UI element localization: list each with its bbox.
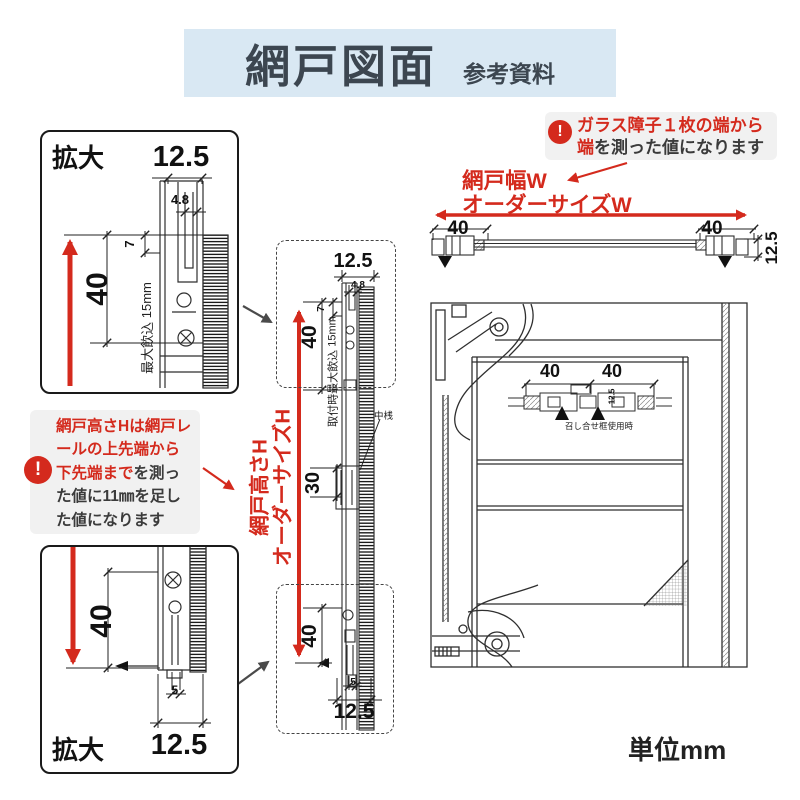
horizontal-section bbox=[432, 236, 748, 268]
meeting-stile-label: 召し合せ框使用時 bbox=[549, 420, 649, 431]
dim-12-5-hsec: 12.5 bbox=[763, 222, 781, 274]
note-height-line5: た値になります bbox=[56, 509, 200, 532]
note-height-line4: た値に11㎜を足し bbox=[56, 485, 200, 508]
callout-arrow-top bbox=[243, 306, 271, 322]
page-title: 網戸図面 bbox=[245, 44, 437, 89]
warning-icon: ! bbox=[548, 120, 572, 144]
window-elevation bbox=[431, 303, 747, 667]
order-size-width-label: オーダーサイズW bbox=[462, 188, 632, 219]
page-subtitle: 参考資料 bbox=[463, 63, 555, 86]
note-height-line3: 下先端までを測っ bbox=[56, 462, 200, 485]
dim-12-5-mid-top: 12.5 bbox=[330, 250, 376, 272]
screen-height-label-line1: 網戸高さH bbox=[248, 409, 271, 566]
dim-5-mid: 5 bbox=[346, 676, 360, 688]
header-band: 網戸図面 参考資料 bbox=[184, 29, 616, 97]
max-swallow-label-top-box: 最大飲込 15mm bbox=[138, 263, 154, 393]
note-height-line1: 網戸高さHは網戸レ bbox=[56, 415, 200, 438]
note-glass-panel: ガラス障子１枚の端から 端を測った値になります bbox=[545, 112, 777, 160]
enlarge-label-bottom: 拡大 bbox=[52, 730, 104, 767]
mid-rail-label: 中桟 bbox=[374, 408, 393, 422]
dim-12-5-bottom-box: 12.5 bbox=[143, 730, 215, 760]
dim-7-top-box: 7 bbox=[121, 235, 137, 253]
dim-40-top-box: 40 bbox=[83, 259, 113, 319]
dim-40-stile-right: 40 bbox=[596, 363, 628, 380]
dim-40-mid-bottom: 40 bbox=[299, 614, 321, 658]
note-glass-line2: 端を測った値になります bbox=[577, 137, 777, 159]
dim-12-5-stile: 12.5 bbox=[608, 384, 617, 410]
dim-12-5-mid-bottom: 12.5 bbox=[330, 701, 378, 723]
note-glass-line1: ガラス障子１枚の端から bbox=[577, 115, 777, 137]
callout-arrow-bottom bbox=[238, 662, 268, 684]
dim-4-8-mid: 4.8 bbox=[344, 279, 372, 291]
dim-30-mid: 30 bbox=[303, 468, 323, 498]
warning-icon: ! bbox=[24, 456, 52, 484]
meeting-stile-detail bbox=[508, 380, 672, 420]
dim-40-bottom-box: 40 bbox=[87, 591, 117, 651]
dim-40-hsec-right: 40 bbox=[694, 220, 730, 238]
dim-12-5-top-box: 12.5 bbox=[146, 142, 216, 172]
screen-door-spec-sheet: 網戸図面 参考資料 ガラス障子１枚の端から 端を測った値になります ! 網戸高さ… bbox=[0, 0, 800, 800]
enlarge-label-top: 拡大 bbox=[52, 138, 104, 175]
max-swallow-label-mid: 取付時最大飲込 15mm bbox=[325, 317, 340, 427]
dim-4-8-top-box: 4.8 bbox=[160, 192, 200, 206]
screen-height-label: 網戸高さH オーダーサイズH bbox=[248, 388, 295, 588]
unit-label: 単位mm bbox=[628, 730, 726, 767]
height-note-arrow bbox=[203, 468, 233, 489]
note-height-line2: ールの上先端から bbox=[56, 438, 200, 461]
dim-40-mid-top: 40 bbox=[299, 315, 321, 359]
dim-40-stile-left: 40 bbox=[534, 363, 566, 380]
order-size-height-label: オーダーサイズH bbox=[271, 409, 294, 566]
dim-40-hsec-left: 40 bbox=[440, 220, 476, 238]
glass-note-arrow bbox=[569, 163, 627, 180]
note-screen-height: 網戸高さHは網戸レ ールの上先端から 下先端までを測っ た値に11㎜を足し た値… bbox=[30, 410, 200, 534]
dim-5-bottom-box: 5 bbox=[168, 684, 182, 698]
